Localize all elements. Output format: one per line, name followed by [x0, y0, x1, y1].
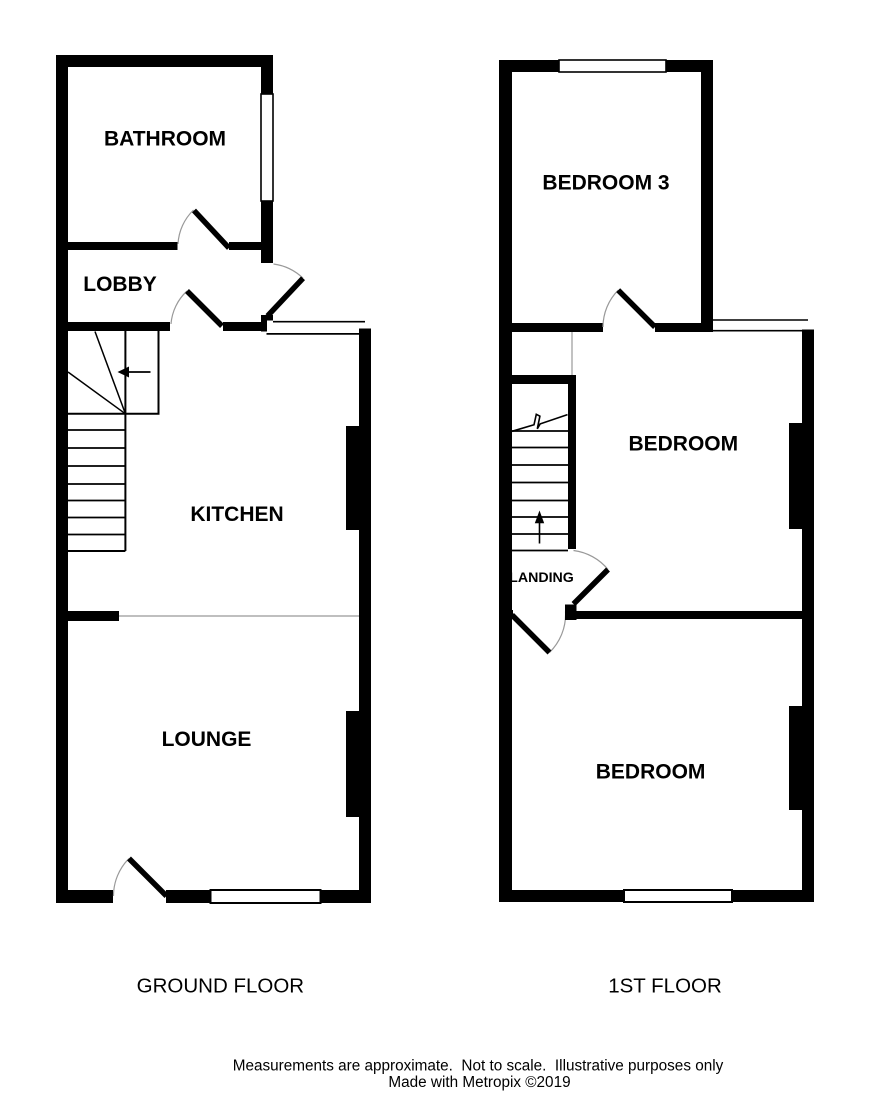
svg-text:BATHROOM: BATHROOM [104, 128, 226, 151]
svg-text:Made with Metropix ©2019: Made with Metropix ©2019 [388, 1074, 570, 1091]
svg-text:LOUNGE: LOUNGE [162, 728, 252, 751]
svg-text:BEDROOM: BEDROOM [596, 761, 706, 784]
svg-text:Measurements are approximate.: Measurements are approximate. Not to sca… [233, 1058, 724, 1075]
svg-text:KITCHEN: KITCHEN [190, 503, 283, 526]
svg-text:1ST FLOOR: 1ST FLOOR [608, 975, 722, 998]
svg-text:LOBBY: LOBBY [83, 273, 157, 296]
svg-text:BEDROOM 3: BEDROOM 3 [542, 172, 669, 195]
svg-text:BEDROOM: BEDROOM [628, 433, 738, 456]
svg-text:GROUND FLOOR: GROUND FLOOR [137, 975, 304, 998]
svg-text:LANDING: LANDING [509, 570, 574, 586]
